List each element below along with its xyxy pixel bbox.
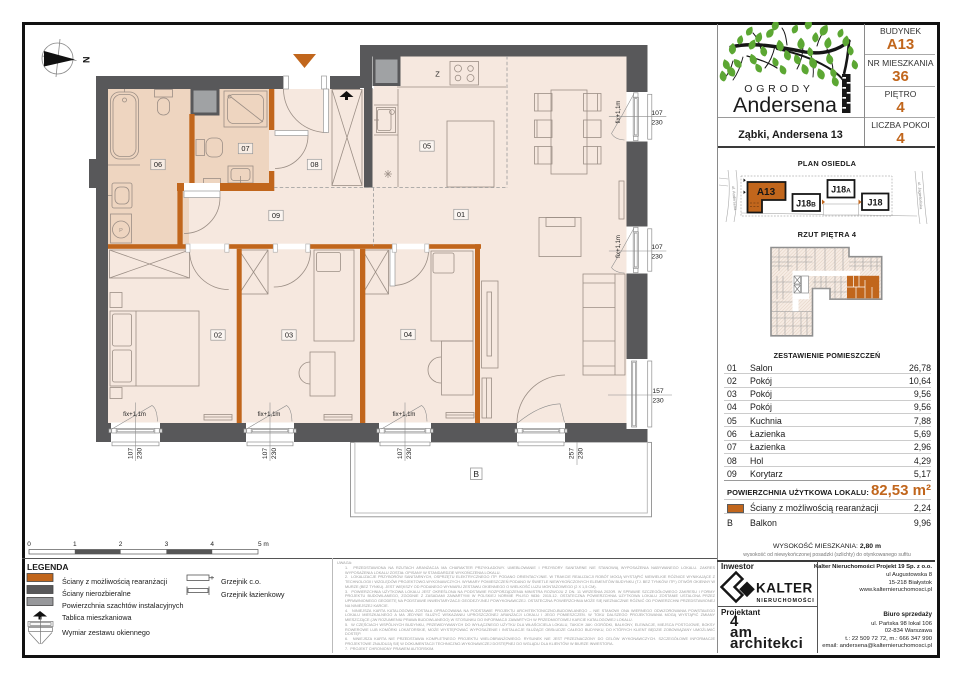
svg-text:fix+1,1m: fix+1,1m <box>393 412 416 418</box>
svg-text:230: 230 <box>651 119 663 126</box>
svg-text:04: 04 <box>404 330 412 339</box>
svg-text:08: 08 <box>310 160 318 169</box>
svg-text:fix+1,1m: fix+1,1m <box>123 412 146 418</box>
svg-text:fix+1,1m: fix+1,1m <box>616 101 622 124</box>
svg-text:257: 257 <box>568 448 575 460</box>
svg-text:07: 07 <box>241 144 249 153</box>
svg-text:230: 230 <box>271 448 278 460</box>
svg-text:107: 107 <box>651 110 663 117</box>
svg-text:230: 230 <box>651 254 663 261</box>
svg-text:107: 107 <box>262 448 269 460</box>
svg-text:N: N <box>81 57 91 64</box>
svg-text:fix+1,1m: fix+1,1m <box>616 235 622 258</box>
svg-text:1: 1 <box>73 541 77 548</box>
svg-text:107: 107 <box>651 244 663 251</box>
svg-text:107: 107 <box>127 448 134 460</box>
svg-text:05: 05 <box>423 142 431 151</box>
svg-text:4: 4 <box>210 541 214 548</box>
svg-text:3: 3 <box>165 541 169 548</box>
svg-text:2: 2 <box>119 541 123 548</box>
svg-text:02: 02 <box>214 331 222 340</box>
svg-text:0: 0 <box>27 541 31 548</box>
svg-text:B: B <box>473 469 479 479</box>
svg-text:230: 230 <box>136 448 143 460</box>
svg-text:fix+1,1m: fix+1,1m <box>258 412 281 418</box>
svg-text:230: 230 <box>652 398 664 405</box>
svg-text:01: 01 <box>457 210 465 219</box>
svg-text:P: P <box>119 228 123 234</box>
svg-text:157: 157 <box>652 388 664 395</box>
svg-text:03: 03 <box>285 331 293 340</box>
svg-text:107: 107 <box>397 448 404 460</box>
svg-text:5 m: 5 m <box>258 541 269 548</box>
svg-text:09: 09 <box>272 211 280 220</box>
svg-text:Z: Z <box>435 70 440 79</box>
svg-text:230: 230 <box>577 448 584 460</box>
svg-text:06: 06 <box>154 160 162 169</box>
svg-text:230: 230 <box>406 448 413 460</box>
